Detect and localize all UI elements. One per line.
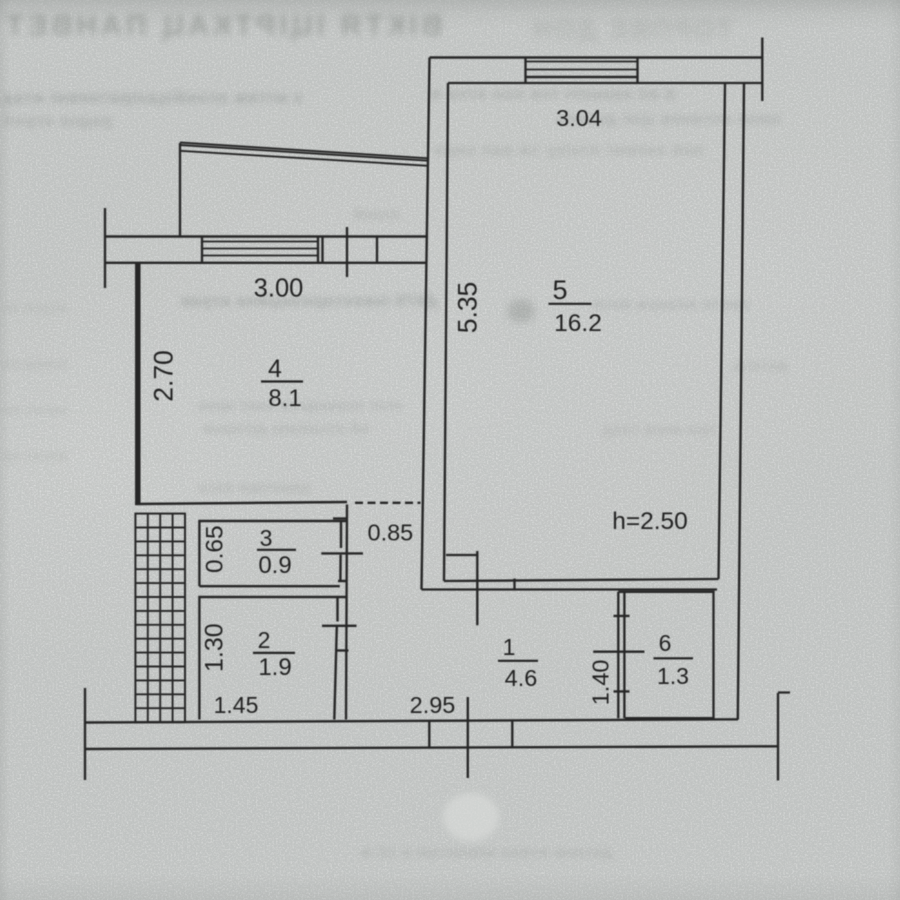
svg-text:0.85: 0.85 [368,520,414,546]
svg-text:16.2: 16.2 [554,310,602,337]
svg-text:3: 3 [260,525,273,551]
svg-text:3.00: 3.00 [254,275,304,303]
svg-text:6: 6 [659,630,672,656]
svg-text:2.70: 2.70 [149,350,179,402]
svg-text:0.65: 0.65 [202,525,229,573]
svg-text:5.35: 5.35 [453,282,483,334]
svg-text:4: 4 [268,355,282,383]
svg-text:4.6: 4.6 [505,665,538,691]
svg-text:h=2.50: h=2.50 [612,508,688,535]
svg-text:1.3: 1.3 [657,663,689,689]
svg-text:0.9: 0.9 [258,552,291,579]
svg-text:1.40: 1.40 [588,660,614,706]
svg-text:2: 2 [258,627,271,653]
svg-text:1.30: 1.30 [201,623,229,672]
svg-text:8.1: 8.1 [268,385,301,412]
svg-text:3.04: 3.04 [556,105,602,131]
svg-text:1.45: 1.45 [214,692,259,718]
svg-text:5: 5 [552,275,567,305]
svg-text:1: 1 [503,634,516,660]
svg-text:1.9: 1.9 [258,654,291,681]
svg-text:2.95: 2.95 [410,692,456,718]
